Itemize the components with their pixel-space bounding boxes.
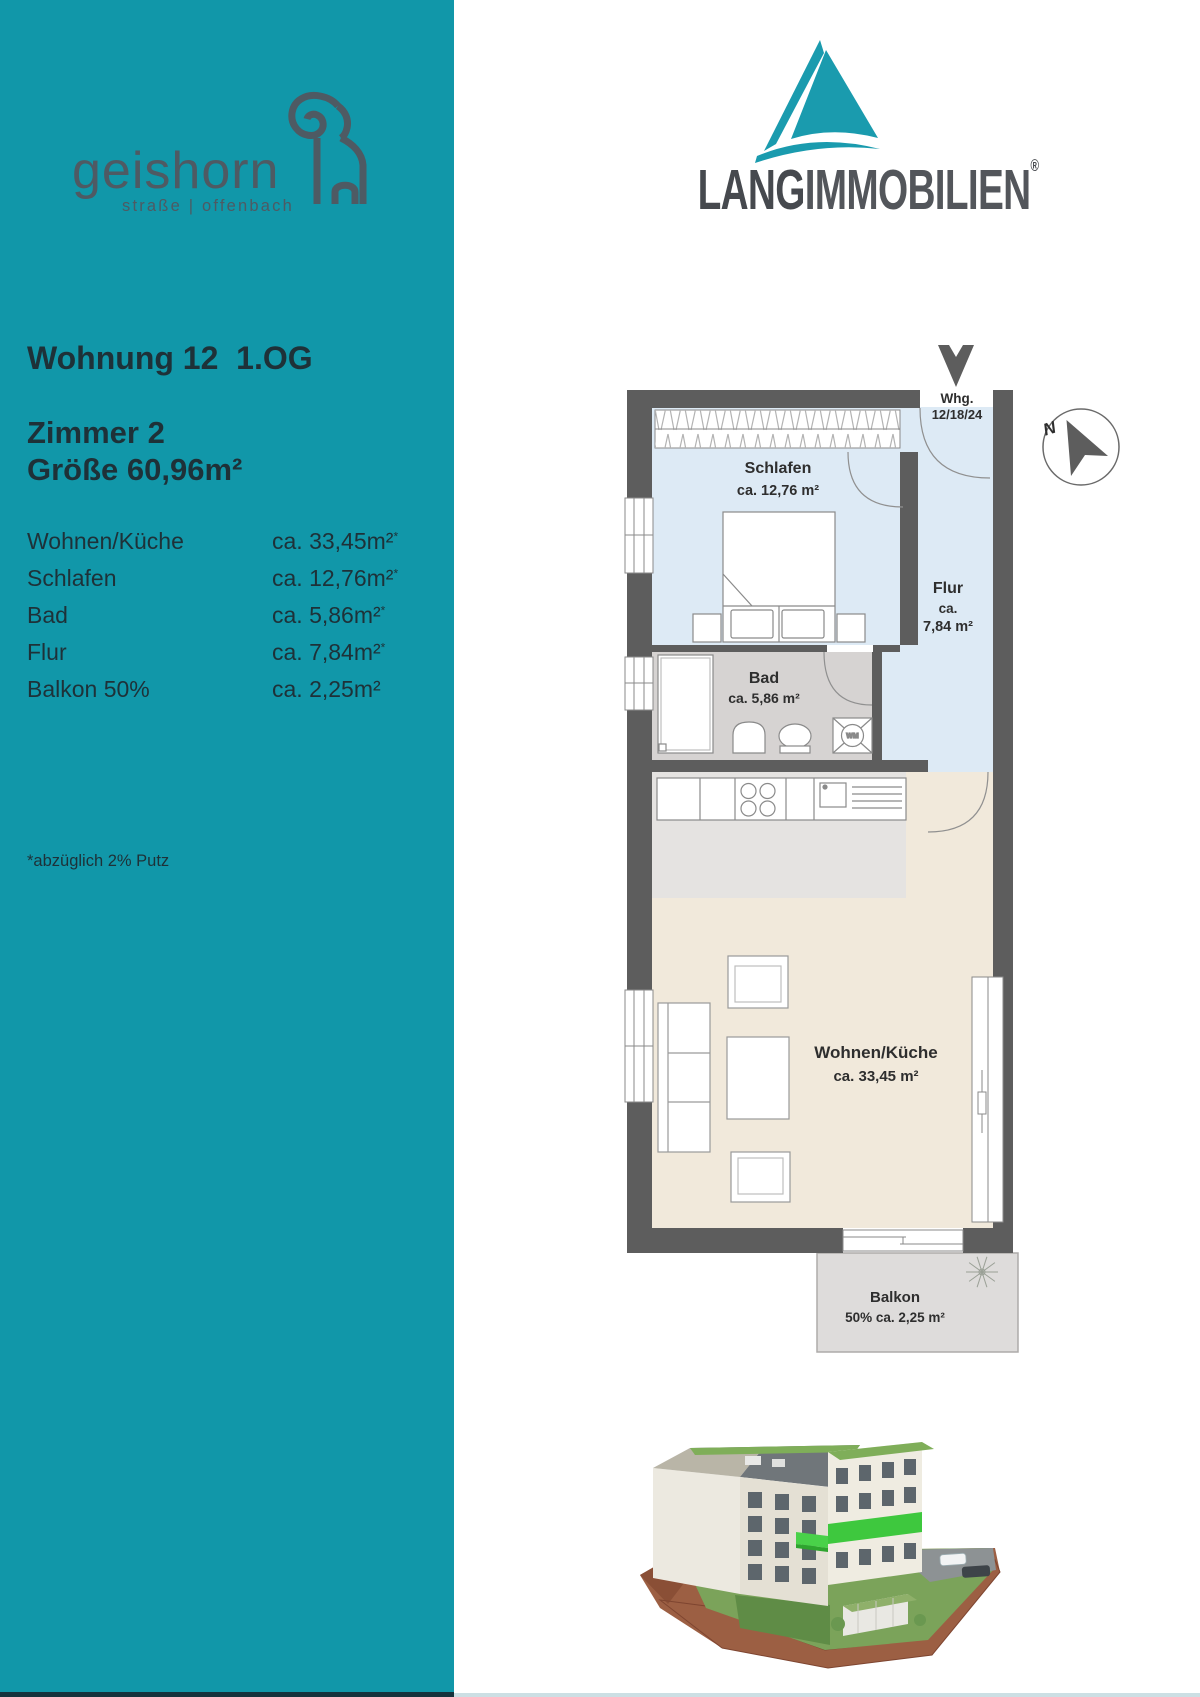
bad-area: ca. 5,86 m²	[728, 690, 800, 706]
sidebar: geishorn straße | offenbach Wohnung 12 1…	[0, 0, 454, 1697]
window-wohnen	[625, 990, 653, 1102]
compass-icon: N	[1041, 409, 1119, 485]
room-value: ca. 2,25m²	[272, 676, 381, 703]
brand-light-part: IMMOBILIEN	[805, 158, 1031, 222]
room-row: Schlafen ca. 12,76m²*	[27, 565, 437, 602]
geishorn-wordmark: geishorn	[72, 142, 279, 200]
brand-wordmark: LANGIMMOBILIEN®	[698, 156, 943, 223]
sofa	[658, 1003, 710, 1152]
geishorn-logo: geishorn straße | offenbach	[50, 82, 400, 222]
footnote-mark: *	[381, 640, 386, 654]
sink	[733, 722, 765, 753]
lang-immobilien-logo: LANGIMMOBILIEN®	[640, 28, 1000, 218]
nightstand	[693, 614, 721, 642]
bad-label: Bad	[749, 670, 779, 687]
wohnen-label: Wohnen/Küche	[814, 1043, 937, 1062]
room-label: Balkon 50%	[27, 676, 150, 703]
washing-machine: WM	[833, 718, 872, 753]
wohnen-area: ca. 33,45 m²	[833, 1068, 918, 1085]
room-label: Wohnen/Küche	[27, 528, 184, 555]
apartment-subtitle: Zimmer 2Größe 60,96m²	[27, 414, 242, 488]
flur-area-line2: 7,84 m²	[923, 619, 973, 635]
flur-area-line1: ca.	[939, 601, 958, 616]
room-value: ca. 33,45m²*	[272, 528, 398, 555]
room-label: Bad	[27, 602, 68, 629]
schlafen-label: Schlafen	[745, 460, 812, 477]
toilet	[779, 724, 811, 753]
room-row: Flur ca. 7,84m²*	[27, 639, 437, 676]
room-label: Schlafen	[27, 565, 117, 592]
balcony-sliding-door	[843, 1230, 963, 1251]
entrance-label-line1: Whg.	[941, 391, 974, 406]
wardrobe	[655, 410, 900, 448]
flur-label: Flur	[933, 580, 963, 597]
room-label: Flur	[27, 639, 67, 666]
registered-symbol: ®	[1030, 156, 1039, 175]
kitchen-sink	[820, 783, 846, 807]
window-schlafen	[625, 498, 653, 573]
armchair	[728, 956, 788, 1008]
floor-plan: WM	[575, 315, 1125, 1390]
plaster-footnote: *abzüglich 2% Putz	[27, 852, 169, 871]
tree	[914, 1614, 926, 1626]
room-row: Balkon 50% ca. 2,25m²	[27, 676, 437, 713]
subtitle-line-1: Zimmer 2	[27, 415, 165, 450]
entrance-label-line2: 12/18/24	[932, 407, 983, 422]
car	[962, 1565, 991, 1578]
coffee-table	[727, 1037, 789, 1119]
room-value: ca. 12,76m²*	[272, 565, 398, 592]
balkon-area: 50% ca. 2,25 m²	[845, 1310, 945, 1325]
french-window	[972, 977, 1003, 1222]
subtitle-line-2: Größe 60,96m²	[27, 452, 242, 487]
room-area-list: Wohnen/Küche ca. 33,45m²* Schlafen ca. 1…	[27, 528, 437, 713]
flyer-page: geishorn straße | offenbach Wohnung 12 1…	[0, 0, 1200, 1697]
schlafen-area: ca. 12,76 m²	[737, 483, 819, 499]
room-value: ca. 7,84m²*	[272, 639, 385, 666]
entrance-arrow-icon	[938, 345, 974, 387]
shower	[658, 655, 713, 753]
wm-label: WM	[846, 733, 859, 740]
footnote-mark: *	[381, 603, 386, 617]
footnote-mark: *	[393, 529, 398, 543]
page-title: Wohnung 12 1.OG	[27, 340, 313, 377]
page-bottom-rule	[454, 1693, 1200, 1697]
balkon-label: Balkon	[870, 1289, 920, 1306]
room-value: ca. 5,86m²*	[272, 602, 385, 629]
brand-bold-part: LANG	[698, 158, 805, 222]
room-row: Wohnen/Küche ca. 33,45m²*	[27, 528, 437, 565]
goat-icon	[292, 95, 363, 204]
footnote-mark: *	[393, 566, 398, 580]
armchair	[731, 1152, 790, 1202]
building-render	[600, 1420, 1020, 1680]
tree	[831, 1617, 845, 1631]
room-row: Bad ca. 5,86m²*	[27, 602, 437, 639]
car	[940, 1553, 967, 1566]
kitchen-counter	[657, 778, 906, 820]
geishorn-subtitle: straße | offenbach	[122, 197, 294, 215]
sidebar-bottom-rule	[0, 1692, 454, 1697]
sail-triangle-icon	[640, 28, 1000, 168]
window-bad	[625, 657, 653, 710]
nightstand	[837, 614, 865, 642]
